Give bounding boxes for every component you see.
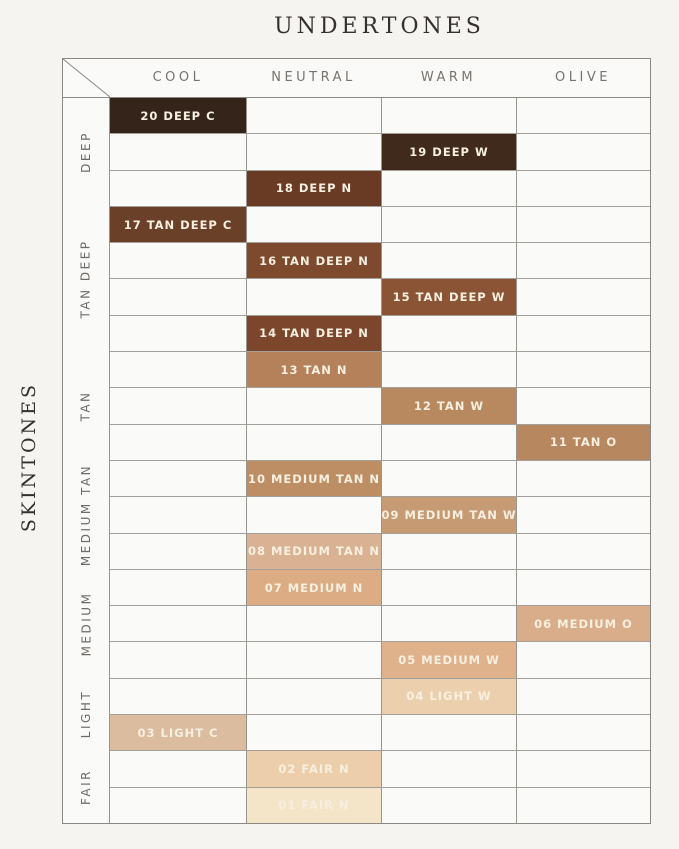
shade-swatch: 11 TAN O [517, 425, 650, 460]
undertone-column-header: COOL [110, 59, 246, 97]
shade-row: 01 FAIR N [110, 787, 650, 823]
skintone-group: MEDIUM TAN [63, 461, 109, 570]
shade-chart: UNDERTONES SKINTONES COOLNEUTRALWARMOLIV… [0, 0, 679, 849]
shade-swatch: 02 FAIR N [247, 751, 381, 786]
shade-row: 11 TAN O [110, 424, 650, 460]
corner-diagonal-icon [63, 59, 110, 97]
skintone-group: TAN [63, 352, 109, 461]
shade-swatch: 12 TAN W [382, 388, 516, 423]
skintone-group-label: MEDIUM TAN [79, 464, 93, 566]
shade-row: 04 LIGHT W [110, 678, 650, 714]
shade-swatch: 20 DEEP C [110, 98, 246, 133]
shade-label: 04 LIGHT W [406, 689, 491, 703]
shade-row: 12 TAN W [110, 387, 650, 423]
shade-label: 11 TAN O [550, 435, 617, 449]
shade-row: 20 DEEP C [110, 98, 650, 133]
shade-swatch: 17 TAN DEEP C [110, 207, 246, 242]
shade-label: 20 DEEP C [140, 109, 215, 123]
shade-label: 12 TAN W [414, 399, 484, 413]
shade-label: 07 MEDIUM N [265, 581, 364, 595]
shade-swatch: 08 MEDIUM TAN N [247, 534, 381, 569]
shade-swatch: 09 MEDIUM TAN W [382, 497, 516, 532]
shade-label: 19 DEEP W [409, 145, 488, 159]
shade-swatch: 18 DEEP N [247, 171, 381, 206]
shade-swatch: 15 TAN DEEP W [382, 279, 516, 314]
shade-swatch: 06 MEDIUM O [517, 606, 650, 641]
shade-swatch: 13 TAN N [247, 352, 381, 387]
shade-label: 16 TAN DEEP N [259, 254, 369, 268]
shade-label: 09 MEDIUM TAN W [381, 508, 516, 522]
skintone-group-label: FAIR [79, 769, 93, 805]
skintone-axis: DEEPTAN DEEPTANMEDIUM TANMEDIUMLIGHTFAIR [63, 98, 110, 823]
shade-row: 09 MEDIUM TAN W [110, 496, 650, 532]
shade-swatch: 01 FAIR N [247, 788, 381, 823]
shade-swatch: 04 LIGHT W [382, 679, 516, 714]
shade-swatch: 03 LIGHT C [110, 715, 246, 750]
skintone-group: DEEP [63, 98, 109, 207]
shade-row: 03 LIGHT C [110, 714, 650, 750]
shade-row: 18 DEEP N [110, 170, 650, 206]
undertone-column-header: WARM [381, 59, 516, 97]
shade-row: 13 TAN N [110, 351, 650, 387]
shade-row: 15 TAN DEEP W [110, 278, 650, 314]
shade-swatch: 10 MEDIUM TAN N [247, 461, 381, 496]
skintone-group-label: MEDIUM [79, 591, 93, 656]
shade-label: 06 MEDIUM O [534, 617, 633, 631]
shade-label: 15 TAN DEEP W [393, 290, 506, 304]
skintone-group-label: DEEP [79, 132, 93, 174]
shade-label: 08 MEDIUM TAN N [248, 544, 380, 558]
shade-grid: COOLNEUTRALWARMOLIVE DEEPTAN DEEPTANMEDI… [62, 58, 651, 824]
shade-label: 18 DEEP N [276, 181, 352, 195]
undertone-column-header: OLIVE [516, 59, 650, 97]
shade-row: 06 MEDIUM O [110, 605, 650, 641]
skintone-group-label: LIGHT [79, 690, 93, 738]
shade-row: 17 TAN DEEP C [110, 206, 650, 242]
shade-swatch: 05 MEDIUM W [382, 642, 516, 677]
skintone-group: FAIR [63, 751, 109, 824]
undertone-column-header: NEUTRAL [246, 59, 381, 97]
shade-label: 03 LIGHT C [138, 726, 219, 740]
skintone-group: LIGHT [63, 678, 109, 751]
shade-label: 14 TAN DEEP N [259, 326, 369, 340]
corner-cell [63, 59, 110, 97]
shade-row: 08 MEDIUM TAN N [110, 533, 650, 569]
shade-row: 19 DEEP W [110, 133, 650, 169]
shade-row: 07 MEDIUM N [110, 569, 650, 605]
shade-label: 05 MEDIUM W [398, 653, 500, 667]
skintones-title: SKINTONES [18, 362, 42, 552]
shade-label: 10 MEDIUM TAN N [248, 472, 380, 486]
header-row: COOLNEUTRALWARMOLIVE [63, 59, 650, 98]
shade-label: 13 TAN N [280, 363, 347, 377]
skintone-group: TAN DEEP [63, 207, 109, 352]
shade-swatch: 19 DEEP W [382, 134, 516, 169]
skintone-group-label: TAN [79, 391, 93, 422]
shade-row: 02 FAIR N [110, 750, 650, 786]
skintone-group-label: TAN DEEP [79, 240, 93, 319]
shade-label: 02 FAIR N [278, 762, 349, 776]
shade-swatch: 14 TAN DEEP N [247, 316, 381, 351]
shade-row: 05 MEDIUM W [110, 641, 650, 677]
shade-swatch: 16 TAN DEEP N [247, 243, 381, 278]
shade-row: 14 TAN DEEP N [110, 315, 650, 351]
shade-matrix: 20 DEEP C19 DEEP W18 DEEP N17 TAN DEEP C… [110, 98, 650, 823]
shade-row: 10 MEDIUM TAN N [110, 460, 650, 496]
undertones-title: UNDERTONES [108, 14, 651, 39]
shade-label: 01 FAIR N [278, 798, 349, 812]
shade-label: 17 TAN DEEP C [124, 218, 233, 232]
shade-row: 16 TAN DEEP N [110, 242, 650, 278]
shade-swatch: 07 MEDIUM N [247, 570, 381, 605]
skintone-group: MEDIUM [63, 569, 109, 678]
